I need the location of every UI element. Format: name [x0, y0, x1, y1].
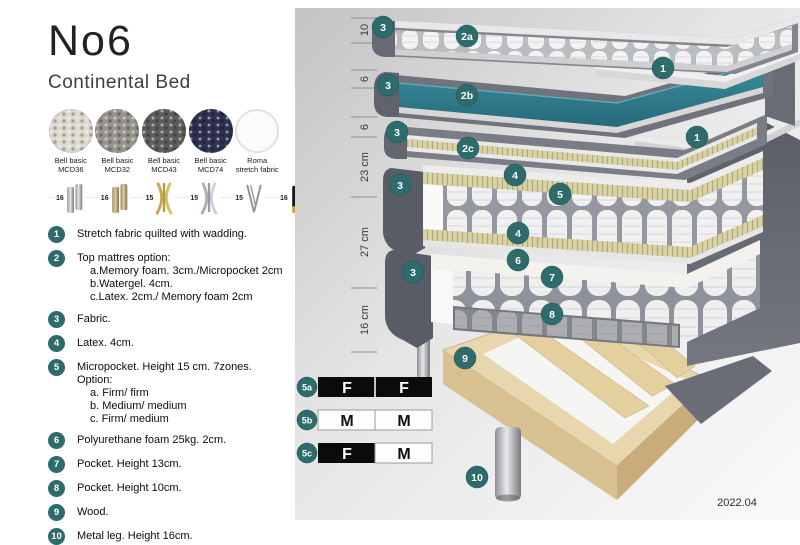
list-item: 3 Fabric. [48, 311, 285, 328]
list-item: 1 Stretch fabric quilted with wadding. [48, 226, 285, 243]
diagram-badge: 3 [377, 74, 399, 96]
feature-text: Pocket. Height 10cm. [77, 480, 182, 495]
list-item: 9 Wood. [48, 504, 285, 521]
feature-text: Pocket. Height 13cm. [77, 456, 182, 471]
svg-text:2b: 2b [461, 90, 473, 102]
page-subtitle: Continental Bed [48, 72, 285, 94]
swatch-name: Bell basic [195, 156, 227, 165]
firmness-cell: M [397, 446, 410, 463]
diagram-badge: 8 [541, 303, 563, 325]
swatch-code: stretch fabric [236, 165, 279, 174]
leg-option-cross-gold: 15 [138, 182, 183, 215]
ruler-label: 6 [359, 124, 371, 130]
svg-text:4: 4 [512, 170, 518, 182]
list-item: 2 Top mattres option: a.Memory foam. 3cm… [48, 250, 285, 304]
list-item: 5 Micropocket. Height 15 cm. 7zones. Opt… [48, 359, 285, 426]
svg-text:8: 8 [549, 309, 555, 321]
svg-text:9: 9 [462, 353, 468, 365]
leg-option-cylinder-silver: 16 [48, 182, 93, 215]
feature-text: Metal leg. Height 16cm. [77, 528, 193, 543]
list-item: 10 Metal leg. Height 16cm. [48, 528, 285, 545]
leg-height-label: 16 [56, 195, 64, 202]
firmness-row-label: 5b [302, 416, 313, 426]
fabric-swatches: Bell basicMCD36 Bell basicMCD32 Bell bas… [48, 109, 280, 175]
fabric-swatch-image [235, 109, 279, 153]
svg-text:3: 3 [380, 22, 386, 34]
feature-text: Latex. 4cm. [77, 335, 134, 350]
fabric-swatch-image [49, 109, 93, 153]
leg-height-label: 15 [146, 195, 154, 202]
svg-text:3: 3 [385, 80, 391, 92]
diagram-badge: 3 [389, 174, 411, 196]
fabric-swatch: Romastretch fabric [234, 109, 280, 175]
svg-text:5: 5 [557, 189, 563, 201]
leg-option-cross-silver: 15 [182, 182, 227, 215]
feature-text: Stretch fabric quilted with wadding. [77, 226, 247, 241]
fabric-swatch: Bell basicMCD74 [188, 109, 234, 175]
feature-suboption: a.Memory foam. 3cm./Micropocket 2cm [77, 265, 283, 278]
svg-text:6: 6 [515, 255, 521, 267]
page-title: No6 [48, 20, 285, 63]
swatch-name: Bell basic [101, 156, 133, 165]
swatch-code: MCD32 [105, 165, 130, 174]
list-item: 6 Polyurethane foam 25kg. 2cm. [48, 432, 285, 449]
leg-height-label: 15 [235, 195, 243, 202]
leg-image [244, 182, 264, 215]
svg-text:3: 3 [410, 267, 416, 279]
leg-image [110, 182, 130, 215]
feature-text: Micropocket. Height 15 cm. 7zones. Optio… [77, 361, 285, 387]
list-item: 7 Pocket. Height 13cm. [48, 456, 285, 473]
feature-number-badge: 5 [48, 359, 65, 376]
list-item: 4 Latex. 4cm. [48, 335, 285, 352]
swatch-name: Bell basic [55, 156, 87, 165]
feature-suboption: c.Latex. 2cm./ Memory foam 2cm [77, 291, 283, 304]
leg-image [154, 182, 174, 215]
feature-number-badge: 1 [48, 226, 65, 243]
feature-number-badge: 4 [48, 335, 65, 352]
swatch-code: MCD43 [151, 165, 176, 174]
feature-suboption: a. Firm/ firm [77, 387, 285, 400]
firmness-cell: F [342, 380, 352, 397]
diagram-badge: 6 [507, 249, 529, 271]
fabric-swatch: Bell basicMCD32 [95, 109, 141, 175]
fabric-swatch: Bell basicMCD36 [48, 109, 94, 175]
swatch-name: Bell basic [148, 156, 180, 165]
diagram-badge: 1 [652, 57, 674, 79]
svg-text:2a: 2a [461, 31, 473, 43]
firmness-cell: M [397, 413, 410, 430]
diagram-badge: 1 [686, 126, 708, 148]
swatch-name: Roma [247, 156, 267, 165]
leg-image [65, 182, 85, 215]
svg-text:3: 3 [394, 127, 400, 139]
metal-leg-front [495, 427, 521, 502]
diagram-badge: 3 [402, 261, 424, 283]
ruler-label: 16 cm [359, 305, 371, 335]
ruler-label: 6 [359, 76, 371, 82]
diagram-badge: 4 [504, 164, 526, 186]
ruler-label: 10 [359, 24, 371, 36]
diagram-badge: 2b [456, 84, 478, 106]
diagram-badge: 7 [541, 266, 563, 288]
firmness-cell: F [342, 446, 352, 463]
svg-text:2c: 2c [462, 143, 474, 155]
diagram-badge: 2a [456, 25, 478, 47]
leg-height-label: 15 [190, 195, 198, 202]
leg-height-label: 16 [280, 195, 288, 202]
feature-text: Top mattres option: [77, 252, 283, 265]
feature-number-badge: 2 [48, 250, 65, 267]
feature-suboption: c. Firm/ medium [77, 413, 285, 426]
firmness-row-label: 5c [302, 449, 312, 459]
diagram-badge: 4 [507, 222, 529, 244]
diagram-badge: 10 [466, 466, 488, 488]
leg-image [199, 182, 219, 215]
diagram-badge: 2c [457, 137, 479, 159]
ruler-label: 27 cm [359, 227, 371, 257]
leg-height-label: 16 [101, 195, 109, 202]
svg-text:4: 4 [515, 228, 521, 240]
diagram-badge: 5 [549, 183, 571, 205]
swatch-code: MCD36 [58, 165, 83, 174]
fabric-swatch-image [95, 109, 139, 153]
version-label: 2022.04 [717, 497, 757, 509]
leg-option-hairpin: 15 [227, 182, 272, 215]
fabric-swatch-image [189, 109, 233, 153]
feature-suboption: b.Watergel. 4cm. [77, 278, 283, 291]
svg-text:7: 7 [549, 272, 555, 284]
feature-number-badge: 7 [48, 456, 65, 473]
firmness-cell: M [340, 413, 353, 430]
svg-text:1: 1 [694, 132, 700, 144]
feature-list: 1 Stretch fabric quilted with wadding. 2… [48, 226, 285, 545]
feature-text: Fabric. [77, 311, 111, 326]
svg-text:1: 1 [660, 63, 666, 75]
feature-number-badge: 9 [48, 504, 65, 521]
bed-exploded-diagram: 10 6 6 23 cm 27 cm 16 cm [295, 8, 800, 520]
feature-suboption: b. Medium/ medium [77, 400, 285, 413]
diagram-badge: 3 [386, 121, 408, 143]
fabric-swatch-image [142, 109, 186, 153]
feature-text: Polyurethane foam 25kg. 2cm. [77, 432, 226, 447]
swatch-code: MCD74 [198, 165, 223, 174]
ruler-label: 23 cm [359, 152, 371, 182]
feature-text: Wood. [77, 504, 109, 519]
diagram-badge: 3 [372, 16, 394, 38]
leg-options: 16 16 15 [48, 182, 276, 215]
info-panel: No6 Continental Bed Bell basicMCD36 Bell… [0, 0, 295, 533]
feature-number-badge: 8 [48, 480, 65, 497]
firmness-cell: F [399, 380, 409, 397]
feature-number-badge: 10 [48, 528, 65, 545]
feature-number-badge: 6 [48, 432, 65, 449]
fabric-swatch: Bell basicMCD43 [141, 109, 187, 175]
diagram-badge: 9 [454, 347, 476, 369]
leg-option-cylinder-brass: 16 [93, 182, 138, 215]
svg-text:10: 10 [471, 472, 483, 484]
feature-number-badge: 3 [48, 311, 65, 328]
svg-text:3: 3 [397, 180, 403, 192]
firmness-row-label: 5a [302, 383, 313, 393]
list-item: 8 Pocket. Height 10cm. [48, 480, 285, 497]
